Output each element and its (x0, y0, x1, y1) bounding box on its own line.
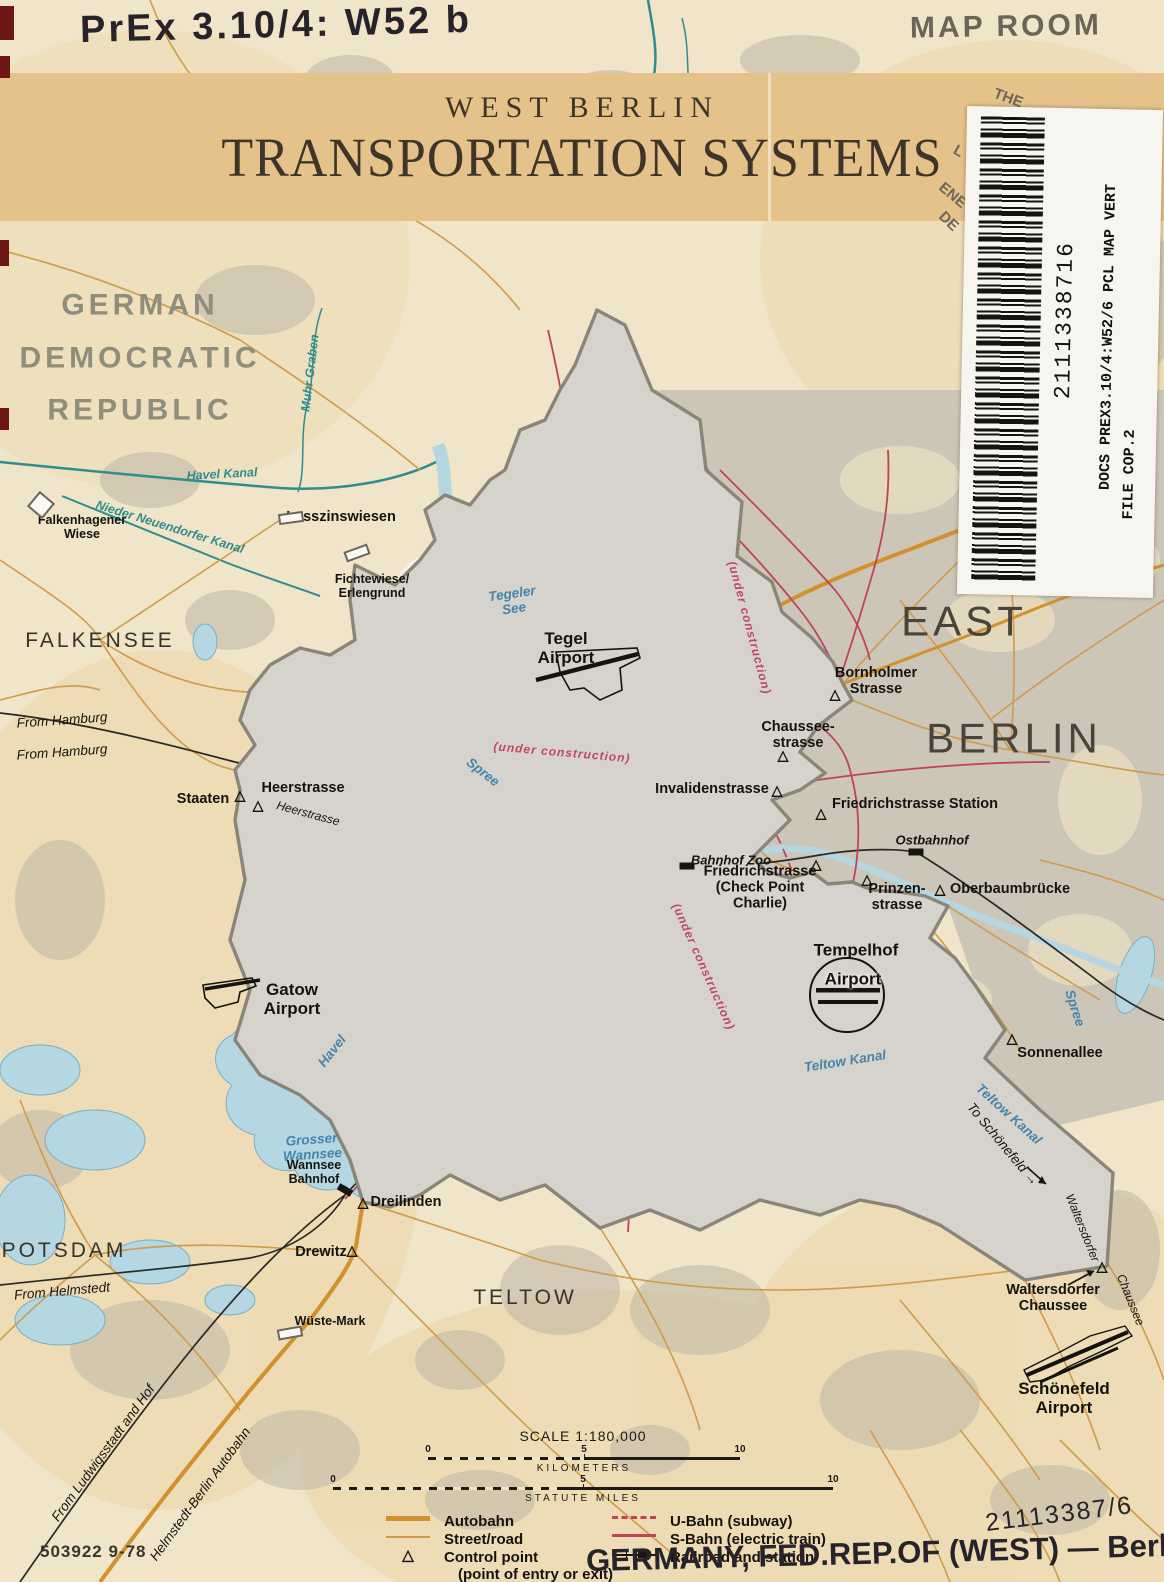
label-chausseestrasse: Chaussee- strasse (761, 719, 834, 751)
label-tegel-airport: Tegel Airport (538, 629, 595, 667)
label-wannsee-bahnhof: Wannsee Bahnhof (287, 1158, 341, 1186)
scan-edge-mark (0, 6, 14, 40)
label-prinzenstrasse: Prinzen- strasse (868, 881, 925, 913)
library-barcode-sticker: 2111338716 DOCS PREX3.10/4:W52/6 PCL MAP… (957, 106, 1163, 598)
km-tick-0: 0 (425, 1444, 431, 1455)
label-oberbaumbruecke: Oberbaumbrücke (950, 881, 1070, 897)
site-wueste-mark (277, 1325, 304, 1340)
map-label: From Ludwigsstadt and Hof (48, 1382, 157, 1524)
control-point-invalidenstrasse: △ (772, 783, 783, 797)
map-label: Havel (315, 1032, 349, 1070)
map-label: Muhr Graben (298, 334, 321, 413)
control-point-staaten: △ (235, 788, 246, 802)
label-checkpoint-charlie: Friedrichstrasse (Check Point Charlie) (704, 864, 817, 913)
map-label: Chaussee (1114, 1272, 1147, 1327)
control-point-bornholmer: △ (830, 687, 841, 701)
barcode-icon (971, 116, 1045, 583)
station-bahnhof-zoo (680, 863, 695, 870)
map-label: Tegeler See (487, 583, 538, 620)
control-point-waltersdorfer: △ (1097, 1259, 1108, 1273)
control-point-heerstrasse: △ (253, 798, 264, 812)
sticker-call-number: DOCS PREX3.10/4:W52/6 PCL MAP VERT (1097, 184, 1120, 490)
map-label: (under construction) (493, 740, 631, 765)
station-wannsee (337, 1183, 353, 1197)
control-point-triangle-icon: △ (386, 1546, 430, 1564)
label-east-berlin-2: BERLIN (926, 714, 1102, 761)
label-sonnenallee: Sonnenallee (1017, 1045, 1102, 1061)
control-point-friedrichstrasse-station: △ (816, 806, 827, 820)
control-point-chausseestrasse: △ (778, 748, 789, 762)
label-dreilinden: Dreilinden (371, 1194, 442, 1210)
sbahn-line-swatch (612, 1534, 656, 1537)
label-ostbahnhof: Ostbahnhof (896, 834, 969, 849)
map-label: Spree (464, 754, 503, 789)
map-label: From Hamburg (16, 741, 108, 762)
map-label: (under construction) (725, 560, 774, 696)
map-label: Helmstedt-Berlin Autobahn (147, 1424, 254, 1563)
scanned-map-page: WEST BERLIN TRANSPORTATION SYSTEMS PrEx … (0, 0, 1164, 1582)
station-ostbahnhof (909, 849, 924, 856)
kilometers-label: KILOMETERS (428, 1463, 740, 1474)
scan-edge-mark (0, 56, 10, 78)
map-label: (under construction) (669, 902, 737, 1033)
label-staaten: Staaten (177, 791, 229, 807)
label-heerstrasse: Heerstrasse (261, 780, 344, 796)
label-potsdam: POTSDAM (2, 1239, 127, 1263)
legend-label-ubahn: U-Bahn (subway) (670, 1513, 793, 1530)
label-falkensee: FALKENSEE (25, 629, 175, 653)
control-point-checkpoint-charlie: △ (811, 857, 822, 871)
mi-tick-0: 0 (330, 1474, 336, 1485)
label-schoenefeld-airport: Schönefeld Airport (1018, 1379, 1110, 1417)
label-drewitz: Drewitz (295, 1244, 347, 1260)
autobahn-line-swatch (386, 1516, 430, 1521)
scale-bars: SCALE 1:180,000 0 5 10 KILOMETERS 0 5 10… (333, 1428, 833, 1504)
label-wueste-mark: Wüste-Mark (295, 1314, 366, 1328)
barcode-number: 2111338716 (1050, 241, 1079, 400)
sticker-file-copy: FILE COP.2 (1120, 429, 1139, 519)
control-point-drewitz: △ (347, 1243, 358, 1257)
map-label: Teltow Kanal (803, 1047, 887, 1075)
control-point-oberbaumbruecke: △ (935, 882, 946, 896)
control-point-dreilinden: △ (358, 1195, 369, 1209)
control-point-sonnenallee: △ (1007, 1031, 1018, 1045)
scan-edge-mark (0, 240, 9, 266)
label-german-democratic-republic: GERMAN DEMOCRATIC REPUBLIC (19, 279, 260, 437)
legend-label-street: Street/road (444, 1531, 523, 1548)
mi-tick-10: 10 (827, 1474, 838, 1485)
label-teltow: TELTOW (473, 1286, 577, 1310)
legend-label-autobahn: Autobahn (444, 1513, 514, 1530)
map-label: L (950, 142, 966, 161)
map-label: Spree (1062, 988, 1088, 1028)
label-waltersdorfer-chaussee: Waltersdorfer Chaussee (1006, 1282, 1100, 1314)
map-label: DE (935, 209, 962, 236)
map-label: Fichtewiese/ Erlengrund (335, 572, 409, 600)
print-code: 503922 9-78 (40, 1542, 146, 1562)
label-east-berlin-1: EAST (901, 597, 1027, 644)
map-label: From Helmstedt (14, 1279, 111, 1302)
map-label: Falkenhagener Wiese (38, 513, 126, 541)
label-tempelhof-airport: Airport (825, 969, 882, 988)
scan-edge-mark (0, 408, 9, 430)
kilometers-bar: 0 5 10 (428, 1448, 740, 1462)
label-bornholmer-strasse: Bornholmer Strasse (835, 665, 917, 697)
miles-bar: 0 5 10 (333, 1478, 833, 1492)
label-friedrichstrasse-station: Friedrichstrasse Station (832, 796, 998, 812)
label-invalidenstrasse: Invalidenstrasse (655, 781, 769, 797)
label-tempelhof: Tempelhof (814, 940, 899, 959)
map-label: Havel Kanal (186, 465, 258, 483)
scale-title: SCALE 1:180,000 (333, 1428, 833, 1444)
street-line-swatch (386, 1536, 430, 1538)
km-tick-10: 10 (734, 1444, 745, 1455)
miles-label: STATUTE MILES (333, 1493, 833, 1504)
map-label: Heerstrasse (275, 799, 341, 829)
map-label: From Hamburg (16, 709, 108, 730)
legend-label-control-point: Control point (444, 1549, 538, 1566)
ubahn-line-swatch (612, 1516, 656, 1519)
map-label: Waltersdorfer (1062, 1192, 1101, 1264)
label-gatow-airport: Gatow Airport (264, 980, 321, 1018)
control-point-prinzenstrasse: △ (862, 872, 873, 886)
site-fichtewiese (343, 544, 370, 563)
